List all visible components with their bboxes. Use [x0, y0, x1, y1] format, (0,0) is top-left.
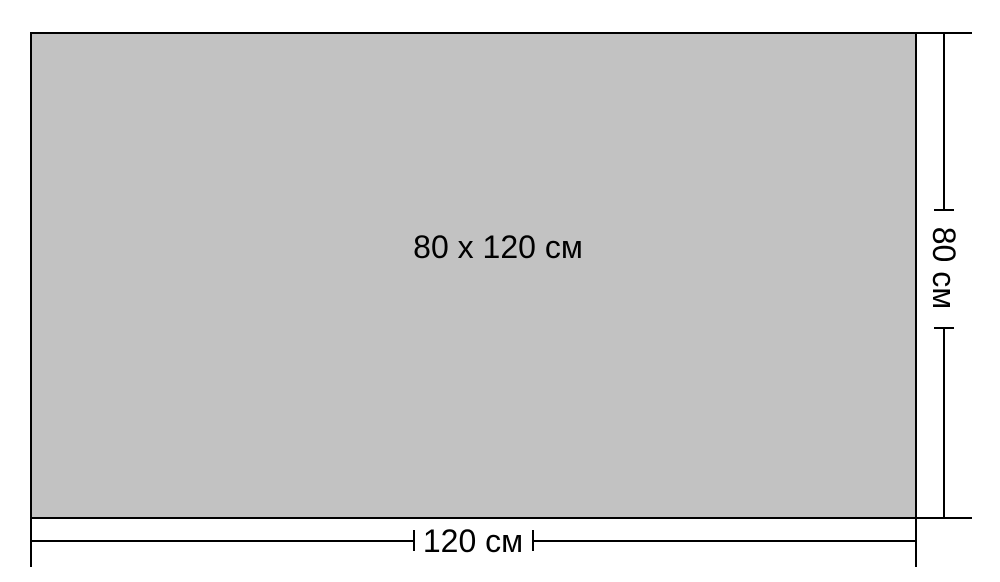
height-dimension-tick-top: [934, 209, 954, 211]
width-dimension-line-right: [534, 540, 916, 542]
bottom-extension-line: [915, 517, 972, 519]
size-label: 80 x 120 см: [413, 231, 583, 263]
left-extension-line: [30, 519, 32, 567]
dimension-diagram: 80 x 120 см 80 см 120 см: [0, 0, 1000, 582]
width-dimension-tick-left: [413, 530, 415, 551]
height-dimension-line-top: [943, 34, 945, 210]
height-label: 80 см: [928, 227, 960, 309]
width-label: 120 см: [423, 525, 523, 557]
right-extension-line: [915, 519, 917, 567]
dimension-rectangle: [30, 32, 917, 519]
width-dimension-line-left: [32, 540, 414, 542]
height-dimension-line-bottom: [943, 329, 945, 517]
